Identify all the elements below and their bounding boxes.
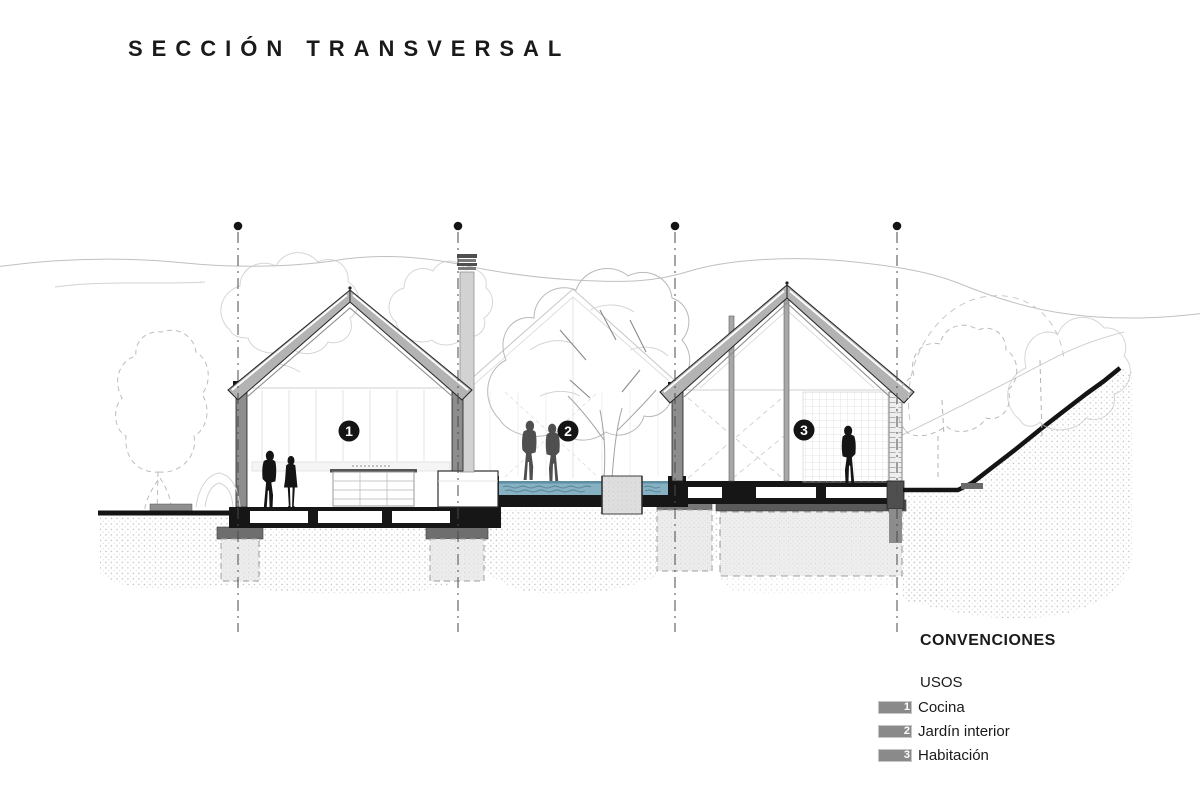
- planter: [602, 476, 642, 514]
- roof: [228, 286, 472, 400]
- legend-swatch-3: 3: [878, 749, 912, 762]
- pier-cap: [426, 527, 488, 539]
- brace-lines: [688, 398, 784, 478]
- legend-heading: CONVENCIONES: [920, 632, 1056, 650]
- marker-3-number: 3: [800, 422, 808, 438]
- legend-item-habitacion: 3 Habitación: [878, 747, 1056, 764]
- person-couple-man: [262, 451, 276, 508]
- legend-swatch-2-number: 2: [904, 725, 910, 738]
- section-marker-dot: [454, 222, 463, 231]
- architectural-section-sheet: SECCIÓN TRANSVERSAL: [0, 0, 1200, 800]
- king-post: [784, 300, 789, 481]
- legend-swatch-2: 2: [878, 725, 912, 738]
- paving-strip: [961, 483, 983, 489]
- section-marker-dot: [234, 222, 243, 231]
- garden-arch-sketch: [196, 473, 240, 507]
- paving-strip: [150, 504, 192, 511]
- marker-2-number: 2: [564, 423, 572, 439]
- fireplace: [438, 471, 498, 507]
- section-marker-dot: [893, 222, 902, 231]
- legend-item-label: Cocina: [918, 699, 965, 716]
- space-markers: 1 2 3: [339, 420, 815, 442]
- terrain-contours: [0, 257, 1200, 437]
- legend-swatch-1-number: 1: [904, 701, 910, 714]
- kitchen-counter: [330, 466, 417, 506]
- tree-left-dashed: [116, 330, 209, 513]
- marker-1-number: 1: [345, 423, 353, 439]
- legend-items: 1 Cocina 2 Jardín interior 3 Habitación: [878, 699, 1056, 764]
- pier-cap: [217, 527, 263, 539]
- marker-3-badge: 3: [794, 420, 815, 441]
- house-2-section: [660, 281, 914, 543]
- legend-item-label: Jardín interior: [918, 723, 1010, 740]
- legend-swatch-3-number: 3: [904, 749, 910, 762]
- marker-2-badge: 2: [558, 421, 579, 442]
- legend-group-label: USOS: [920, 674, 1056, 691]
- house-1-section: [196, 254, 501, 528]
- person-courtyard-a: [522, 421, 536, 480]
- wall-left: [672, 388, 683, 481]
- section-marker-dot: [671, 222, 680, 231]
- tree-cluster-left: [221, 253, 493, 372]
- wall-right-masonry: [887, 392, 904, 543]
- marker-1-badge: 1: [339, 421, 360, 442]
- legend-item-label: Habitación: [918, 747, 989, 764]
- legend: CONVENCIONES USOS 1 Cocina 2 Jardín inte…: [878, 632, 1056, 764]
- background-gable-building: [463, 289, 681, 478]
- legend-item-jardin-interior: 2 Jardín interior: [878, 723, 1056, 740]
- channel-bottom: [486, 495, 688, 507]
- legend-swatch-1: 1: [878, 701, 912, 714]
- legend-item-cocina: 1 Cocina: [878, 699, 1056, 716]
